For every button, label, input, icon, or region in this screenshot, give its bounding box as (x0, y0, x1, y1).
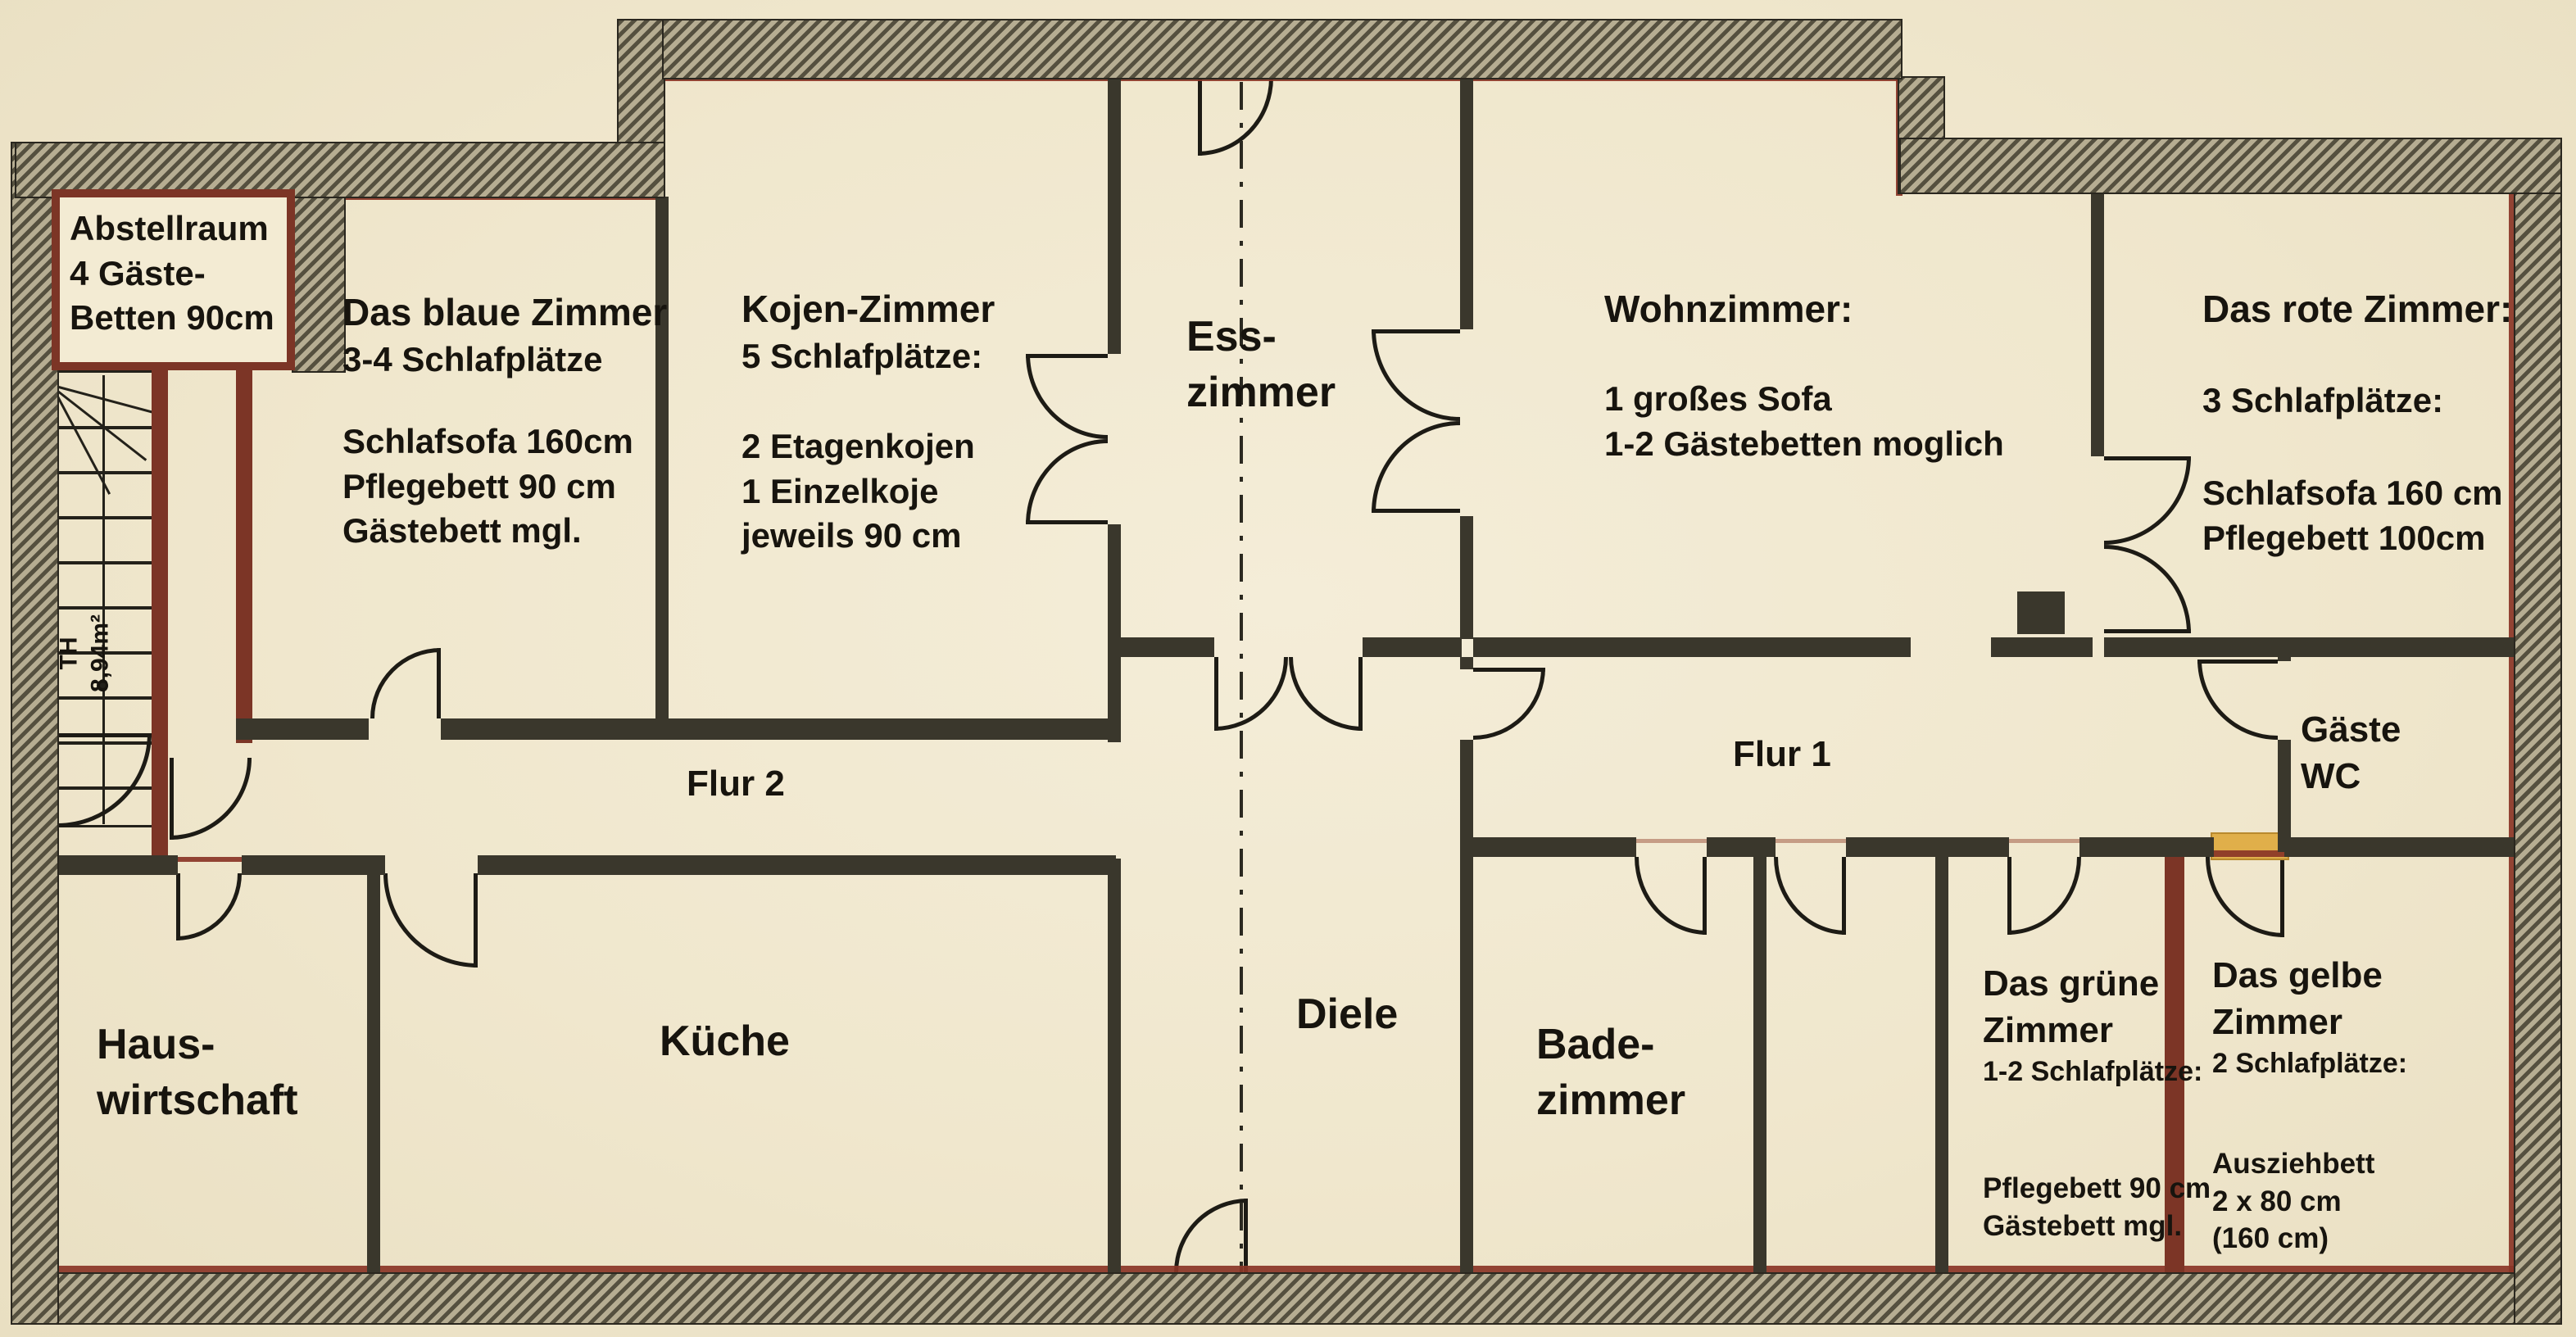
floor-plan: Abstellraum 4 Gäste- Betten 90cm Das bla… (0, 0, 2576, 1337)
inner-wall-segment (1935, 857, 1948, 1274)
abstellraum-title: Abstellraum (70, 206, 274, 252)
kojen-detail-3: jeweils 90 cm (742, 514, 975, 559)
inner-wall-segment (1108, 78, 1121, 354)
gruenes-zimmer-door (2007, 857, 2081, 935)
flur2-title: Flur 2 (687, 760, 785, 807)
inner-wall-segment (1121, 637, 1214, 657)
abstellraum-line1: 4 Gäste- (70, 252, 274, 297)
flur1-title: Flur 1 (1733, 731, 1831, 777)
room-label-rotes-zimmer: Das rote Zimmer: (2202, 285, 2512, 334)
inner-wall-segment (1108, 524, 1121, 729)
inner-wall-segment (1753, 857, 1766, 1274)
gelbe-detail-3: (160 cm) (2212, 1220, 2374, 1258)
esszimmer-diele-double-door-left (1214, 657, 1288, 731)
blaues-detail-3: Gästebett mgl. (342, 509, 633, 554)
kueche-door (383, 873, 478, 968)
gelbe-subtitle: 2 Schlafplätze: (2212, 1045, 2407, 1081)
wohnzimmer-detail-2: 1-2 Gästebetten moglich (1604, 422, 2004, 467)
outer-wall-segment (1901, 139, 2560, 193)
gruene-title-2: Zimmer (1983, 1007, 2202, 1054)
wc-title-2: WC (2301, 753, 2401, 800)
hauswirtschaft-door (176, 873, 242, 940)
kojen-subtitle: 5 Schlafplätze: (742, 334, 995, 379)
red-wall-segment (236, 367, 252, 743)
gaeste-wc-door (2197, 659, 2278, 740)
inner-wall-segment (57, 855, 178, 875)
gruene-detail-1: Pflegebett 90 cm (1983, 1170, 2211, 1208)
room-label-gelbes-zimmer: Das gelbe Zimmer 2 Schlafplätze: (2212, 952, 2407, 1082)
outer-wall-segment (293, 191, 344, 371)
kojen-detail-1: 2 Etagenkojen (742, 424, 975, 469)
gruene-detail-2: Gästebett mgl. (1983, 1208, 2211, 1245)
inner-wall-segment (1473, 837, 1636, 857)
inner-wall-segment (1460, 78, 1473, 329)
gelbe-detail-2: 2 x 80 cm (2212, 1183, 2374, 1221)
inner-wall-segment (1846, 837, 2009, 857)
blaues-subtitle: 3-4 Schlafplätze (342, 338, 667, 383)
inner-wall-segment (2091, 193, 2104, 456)
hall-to-flur2-door (170, 758, 252, 840)
inner-wall-segment (2079, 837, 2214, 857)
blaues-title: Das blaue Zimmer (342, 288, 667, 338)
room-detail-gelbes-zimmer: Ausziehbett 2 x 80 cm (160 cm) (2212, 1145, 2374, 1258)
outer-wall-segment (12, 1274, 2560, 1323)
wc-title-1: Gäste (2301, 706, 2401, 753)
apartment-boundary-line (2509, 191, 2515, 1274)
inner-wall-segment (478, 855, 1116, 875)
badezimmer-door-2 (1774, 857, 1846, 935)
room-label-hauswirtschaft: Haus- wirtschaft (97, 1017, 298, 1128)
gelbe-detail-1: Ausziehbett (2212, 1145, 2374, 1183)
gelbe-title-2: Zimmer (2212, 999, 2407, 1045)
room-detail-kojen-zimmer: 2 Etagenkojen 1 Einzelkoje jeweils 90 cm (742, 424, 975, 559)
room-detail-gruenes-zimmer: Pflegebett 90 cm Gästebett mgl. (1983, 1170, 2211, 1244)
rotes-zimmer-double-door-lower (2104, 545, 2191, 633)
room-detail-wohnzimmer: 1 großes Sofa 1-2 Gästebetten moglich (1604, 377, 2004, 466)
inner-wall-segment (1473, 637, 1911, 657)
rotes-detail-2: Pflegebett 100cm (2202, 516, 2503, 561)
room-label-badezimmer: Bade- zimmer (1536, 1017, 1685, 1128)
room-label-blaues-zimmer: Das blaue Zimmer 3-4 Schlafplätze (342, 288, 667, 382)
room-label-treppenhaus: TH 8,94m² (54, 584, 116, 723)
inner-wall-segment (2278, 740, 2291, 852)
room-label-flur2: Flur 2 (687, 760, 785, 807)
room-label-wohnzimmer: Wohnzimmer: (1604, 285, 1853, 334)
esszimmer-entry-door (1198, 78, 1273, 156)
diele-flur1-door (1473, 668, 1545, 740)
outer-wall-segment (2515, 139, 2560, 1323)
inner-wall-segment (1363, 637, 1462, 657)
room-label-kojen-zimmer: Kojen-Zimmer 5 Schlafplätze: (742, 285, 995, 378)
room-label-gruenes-zimmer: Das grüne Zimmer 1-2 Schlafplätze: (1983, 960, 2202, 1090)
esszimmer-title-1: Ess- (1186, 310, 1336, 365)
axis-center-line (1240, 82, 1243, 1274)
inner-wall-segment (2104, 637, 2515, 657)
wohnzimmer-double-door-lower (1372, 421, 1460, 513)
hw-title-1: Haus- (97, 1017, 298, 1073)
gruene-subtitle: 1-2 Schlafplätze: (1983, 1054, 2202, 1090)
red-wall-segment (152, 367, 168, 872)
room-label-gaeste-wc: Gäste WC (2301, 706, 2401, 800)
kojen-title: Kojen-Zimmer (742, 285, 995, 334)
inner-wall-segment (367, 873, 380, 1274)
room-sub-rotes-zimmer: 3 Schlafplätze: (2202, 378, 2443, 424)
inner-wall-segment (2284, 837, 2515, 857)
inner-wall-segment (242, 855, 385, 875)
outer-wall-segment (664, 20, 1901, 78)
wohnzimmer-title: Wohnzimmer: (1604, 285, 1853, 334)
inner-wall-segment (441, 718, 1116, 740)
blaues-detail-1: Schlafsofa 160cm (342, 419, 633, 465)
room-detail-blaues-zimmer: Schlafsofa 160cm Pflegebett 90 cm Gästeb… (342, 419, 633, 554)
kojen-double-door-upper (1026, 354, 1108, 439)
outer-wall-segment (12, 143, 57, 1323)
gelbes-zimmer-door (2206, 857, 2284, 937)
room-label-kueche: Küche (660, 1014, 790, 1070)
inner-wall-segment (1460, 657, 1473, 669)
wohnzimmer-detail-1: 1 großes Sofa (1604, 377, 2004, 422)
inner-wall-segment (1108, 859, 1121, 1274)
bad-title-1: Bade- (1536, 1017, 1685, 1073)
abstellraum-line2: Betten 90cm (70, 296, 274, 341)
rotes-zimmer-double-door-upper (2104, 456, 2191, 545)
inner-wall-segment (655, 197, 669, 721)
rotes-subtitle: 3 Schlafplätze: (2202, 378, 2443, 424)
apartment-boundary-line (57, 1266, 2515, 1272)
room-label-diele: Diele (1296, 987, 1398, 1043)
blaues-detail-2: Pflegebett 90 cm (342, 465, 633, 510)
kojen-detail-2: 1 Einzelkoje (742, 469, 975, 514)
inner-wall-segment (1707, 837, 1776, 857)
inner-wall-segment (236, 718, 369, 740)
esszimmer-diele-double-door-right (1289, 657, 1363, 731)
diele-title: Diele (1296, 987, 1398, 1043)
inner-wall-segment (1991, 637, 2093, 657)
bad-title-2: zimmer (1536, 1073, 1685, 1129)
gelbe-title-1: Das gelbe (2212, 952, 2407, 999)
inner-wall-segment (1460, 740, 1473, 1274)
th-area: 8,94m² (84, 584, 116, 723)
esszimmer-title-2: zimmer (1186, 365, 1336, 421)
wohnzimmer-double-door-upper (1372, 329, 1460, 421)
inner-wall-segment (1460, 516, 1473, 639)
kojen-double-door-lower (1026, 439, 1108, 524)
room-label-esszimmer: Ess- zimmer (1186, 310, 1336, 420)
gruene-title-1: Das grüne (1983, 960, 2202, 1007)
room-detail-rotes-zimmer: Schlafsofa 160 cm Pflegebett 100cm (2202, 471, 2503, 560)
kueche-title: Küche (660, 1014, 790, 1070)
room-label-abstellraum: Abstellraum 4 Gäste- Betten 90cm (70, 206, 274, 341)
th-label: TH (54, 584, 85, 723)
badezimmer-door (1635, 857, 1707, 935)
blaues-zimmer-door (370, 648, 441, 718)
room-label-flur1: Flur 1 (1733, 731, 1831, 777)
rotes-detail-1: Schlafsofa 160 cm (2202, 471, 2503, 516)
diele-entry-door (1174, 1199, 1248, 1272)
inner-wall-segment (2017, 591, 2065, 634)
rotes-title: Das rote Zimmer: (2202, 285, 2512, 334)
hw-title-2: wirtschaft (97, 1073, 298, 1129)
